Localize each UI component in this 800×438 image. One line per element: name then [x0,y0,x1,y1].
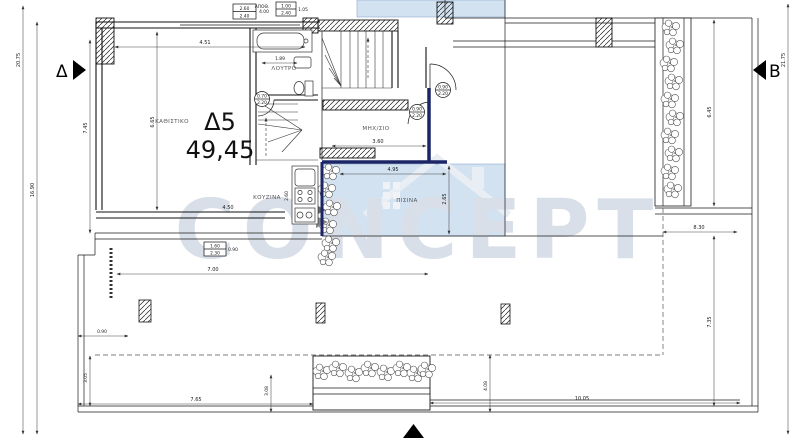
floor-plan-svg: CONCEPT [0,0,800,438]
wall-column [437,2,453,24]
bathtub-drain [304,39,308,43]
dim-right-upper: 8.30 [693,225,704,231]
dim-right-lower: 7.35 [707,316,713,327]
dim-right-total: 21.75 [781,53,787,67]
section-arrow-left-icon [753,60,766,80]
dim-bottom-right: 10.05 [575,396,589,402]
svg-text:1.05: 1.05 [298,7,308,13]
terrace-column [316,303,325,323]
dim-bath: 1.89 [275,56,285,62]
svg-text:2.40: 2.40 [240,14,250,20]
staircase-upper [322,31,392,88]
floor-plan-drawing: CONCEPT [0,0,800,438]
toilet-bowl-icon [294,82,304,95]
dim-terrace-depth: 4.08 [483,381,489,391]
watermark-text: CONCEPT [175,183,662,278]
dim-left-step: 0.90 [97,329,107,335]
unit-label: Δ5 49,45 [186,108,255,164]
dim-left-lower: 3.05 [83,373,89,383]
svg-text:0.90: 0.90 [228,247,238,253]
room-label-living: ΚΑΘΙΣΤΙΚΟ [155,119,189,125]
staircase-lower [256,104,318,160]
machine-room-wall [323,100,408,110]
kitchen-fixtures [292,166,318,224]
toilet-cistern-icon [305,81,313,96]
svg-text:0.70: 0.70 [257,94,267,100]
room-label-kitchen: ΚΟΥΖΙΝΑ [253,195,281,201]
svg-text:1.60: 1.60 [210,244,220,250]
dim-top-wall: 4.51 [199,40,210,46]
door-marker-bath: 0.70 2.20 [255,92,270,107]
door-marker-machine-top: 0.90 2.20 [436,83,451,98]
dim-left-partial: 16.90 [30,183,36,197]
unit-area: 49,45 [186,136,255,164]
section-marker-left-label: Δ [56,62,68,82]
section-arrow-right-icon [73,60,86,80]
svg-text:2.40: 2.40 [281,11,291,17]
bottom-arrow-icon [403,424,424,438]
svg-text:1.00: 1.00 [281,4,291,10]
svg-text:2.30: 2.30 [210,251,220,257]
dim-machine-width: 3.60 [372,139,383,145]
svg-text:2.20: 2.20 [257,100,267,106]
room-label-machine: ΜΗΧ/ΣΙΟ [362,126,389,132]
stove-icon [295,188,315,204]
svg-text:2.20: 2.20 [412,113,422,119]
wall-column [596,18,612,47]
terrace-column [139,300,151,322]
stair-wall-hatched [318,20,398,31]
svg-text:2.60: 2.60 [240,6,250,12]
sink-bowl-icon [306,212,312,218]
dim-kitchen-depth: 2.60 [284,191,290,201]
room-label-storage: ΑΠΟΘ. [255,4,270,10]
room-label-pool: ΠΙΣΙΝΑ [396,198,417,204]
window-marker-top-small: 1.00 2.40 1.05 [276,2,308,17]
dim-left-total: 20.75 [16,53,22,67]
unit-number: Δ5 [204,108,236,136]
fridge-icon [295,169,315,186]
dim-left-inner: 7.45 [83,122,89,133]
dim-right-planter: 6.45 [707,106,713,117]
dim-terrace-front: 7.00 [207,267,218,273]
door-marker-machine-side: 0.90 2.20 [410,105,425,120]
terrace-column [501,304,510,324]
svg-text:0.90: 0.90 [438,85,448,91]
dim-pool-width: 4.95 [387,167,398,173]
dim-bottom-left: 7.65 [190,397,201,403]
wall-column [96,18,114,64]
machine-room-wall [320,148,375,158]
sink-bowl-icon [297,212,303,218]
dim-pool-height: 2.65 [442,193,448,204]
room-label-bath: ΛΟΥΤΡΟ [271,66,296,72]
bathtub-inner [257,33,304,49]
svg-text:0.90: 0.90 [412,107,422,113]
section-marker-right-label: B [769,62,781,82]
dim-planter-offset: 3.08 [264,386,270,396]
svg-text:2.20: 2.20 [438,91,448,97]
pool-strip-top [357,0,505,17]
dim-living-bottom: 4.50 [222,205,233,211]
